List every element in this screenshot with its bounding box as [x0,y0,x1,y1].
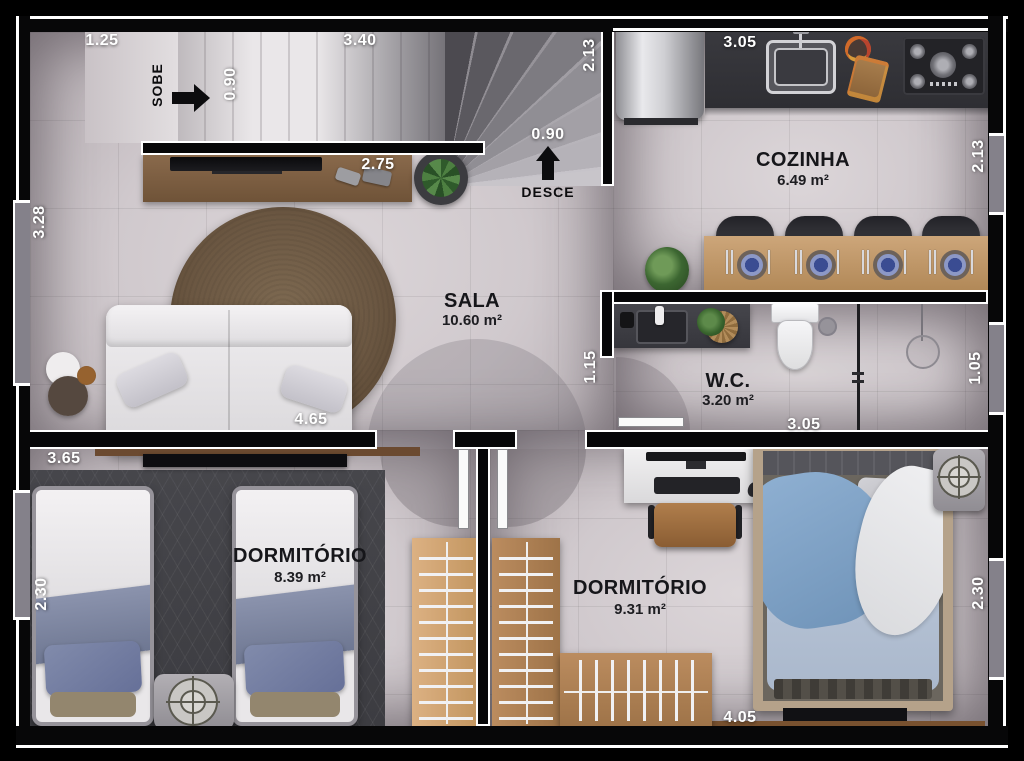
dim-kitchen-right: 2.13 [961,134,997,178]
fork [867,250,869,274]
bed-foot-slats [774,679,932,699]
wardrobe-dark-bar [560,653,712,728]
dinner-plate [737,250,767,280]
sofa-cushion-divider [228,310,230,450]
room-label-cozinha: COZINHA [743,149,863,171]
folded-towel [620,312,634,328]
dinner-plate [940,250,970,280]
vanity-plant [697,308,725,336]
stove-burner [910,74,925,89]
dim-dorm1-top: 3.65 [42,450,86,468]
closet-rail [526,542,528,724]
fridge-base [624,118,698,125]
knife [971,250,973,274]
faucet [799,32,802,48]
fork [929,250,931,274]
shower-glass-partition [857,303,860,433]
room-area-sala: 10.60 m² [412,311,532,329]
decor-target [938,456,980,498]
desk-chair-arm [735,505,742,539]
decor-target-line [958,455,960,499]
fork [862,250,864,274]
bed-cushion [50,692,137,718]
shower-glass-handle [852,380,864,383]
arrow-shaft [542,161,554,180]
soap-dispenser [655,306,664,325]
dorm1-door-leaf [458,449,469,529]
fork [731,250,733,274]
plant-leaves [422,159,460,197]
room-label-sala: SALA [412,290,532,312]
tv-stand [212,171,282,174]
dim-wc-width: 3.05 [782,416,826,434]
room-label-dorm2: DORMITÓRIO [565,577,715,599]
dim-dorm2-bottom: 4.05 [718,709,762,727]
bed-cushion [250,692,340,718]
knife [837,250,839,274]
band-wall-middle [453,430,517,449]
stairs-down-arrow [536,146,560,182]
room-area-dorm1: 8.39 m² [225,568,375,586]
stove-burner [910,44,925,59]
dim-hall-width: 1.15 [573,345,609,389]
arrow-head [194,84,210,112]
monitor [646,452,746,461]
dim-stair-depth: 2.13 [572,33,608,77]
stove-burner-center [930,52,956,78]
tv-half-wall [141,141,485,155]
shower-glass-handle [852,372,864,375]
closet-rail [564,691,708,693]
wc-door-leaf [618,417,684,427]
dining-plant [645,247,689,293]
desk-chair [654,503,736,547]
dim-left-height: 3.28 [22,200,58,244]
dorm1-dresser [143,454,347,467]
knife [904,250,906,274]
keyboard [654,477,740,494]
dorm2-tv-panel [783,708,907,722]
room-area-dorm2: 9.31 m² [565,600,715,618]
tv [170,157,322,171]
kitchen-sink-basin [774,48,828,86]
dim-stair-exit: 0.90 [526,126,570,144]
decor-target [168,678,218,726]
stove-burner [962,44,977,59]
fork [934,250,936,274]
double-bed [753,441,953,711]
bed-pillow [244,641,346,697]
floor-drain [818,317,837,336]
toilet-bowl [777,320,813,370]
outer-wall-bottom [16,726,1008,748]
center-wall [476,447,490,726]
band-wall-left [16,430,377,449]
kitchen-wall-inner-line [613,28,988,31]
fork [726,250,728,274]
room-label-dorm1: DORMITÓRIO [225,545,375,567]
stairs-down-label: DESCE [516,183,580,201]
monitor-stand [686,461,706,469]
kitchen-counter-shadow [705,108,988,116]
fork [795,250,797,274]
arrow-shaft [172,92,194,104]
dinner-plate [873,250,903,280]
room-area-wc: 3.20 m² [668,391,788,409]
bed-pillow [44,641,142,697]
stove-burner [962,74,977,89]
room-label-wc: W.C. [668,370,788,392]
dim-stair-width: 0.90 [213,62,249,106]
wardrobe-light [412,538,480,728]
dim-dorm2-right: 2.30 [961,571,997,615]
side-table-small [77,366,96,385]
decor-target-line [192,676,194,727]
dim-wc-right: 1.05 [958,346,994,390]
kitchen-wc-wall [600,290,988,304]
dim-tv-wall: 2.75 [356,156,400,174]
dim-sala-width: 4.65 [289,411,333,429]
single-bed [232,486,358,726]
dim-top-stairs: 3.40 [339,32,381,50]
fridge [616,28,704,120]
closet-rail [446,542,448,724]
arrow-head [536,146,560,161]
dim-kitchen-top: 3.05 [718,34,762,52]
stove-knobs [930,82,958,86]
dinner-plate [806,250,836,280]
shower-head [906,335,940,369]
floor-plan: SOBE DESCE 1.25 3.40 0.90 2.13 3.05 3.28… [0,0,1024,761]
room-area-cozinha: 6.49 m² [743,171,863,189]
dim-top-left: 1.25 [81,32,123,50]
dorm2-door-leaf [497,449,508,529]
wardrobe-dark-column [492,538,560,728]
dim-dorm1-left: 2.30 [24,572,60,616]
knife [768,250,770,274]
fork [800,250,802,274]
stairs-up-arrow [172,78,210,118]
